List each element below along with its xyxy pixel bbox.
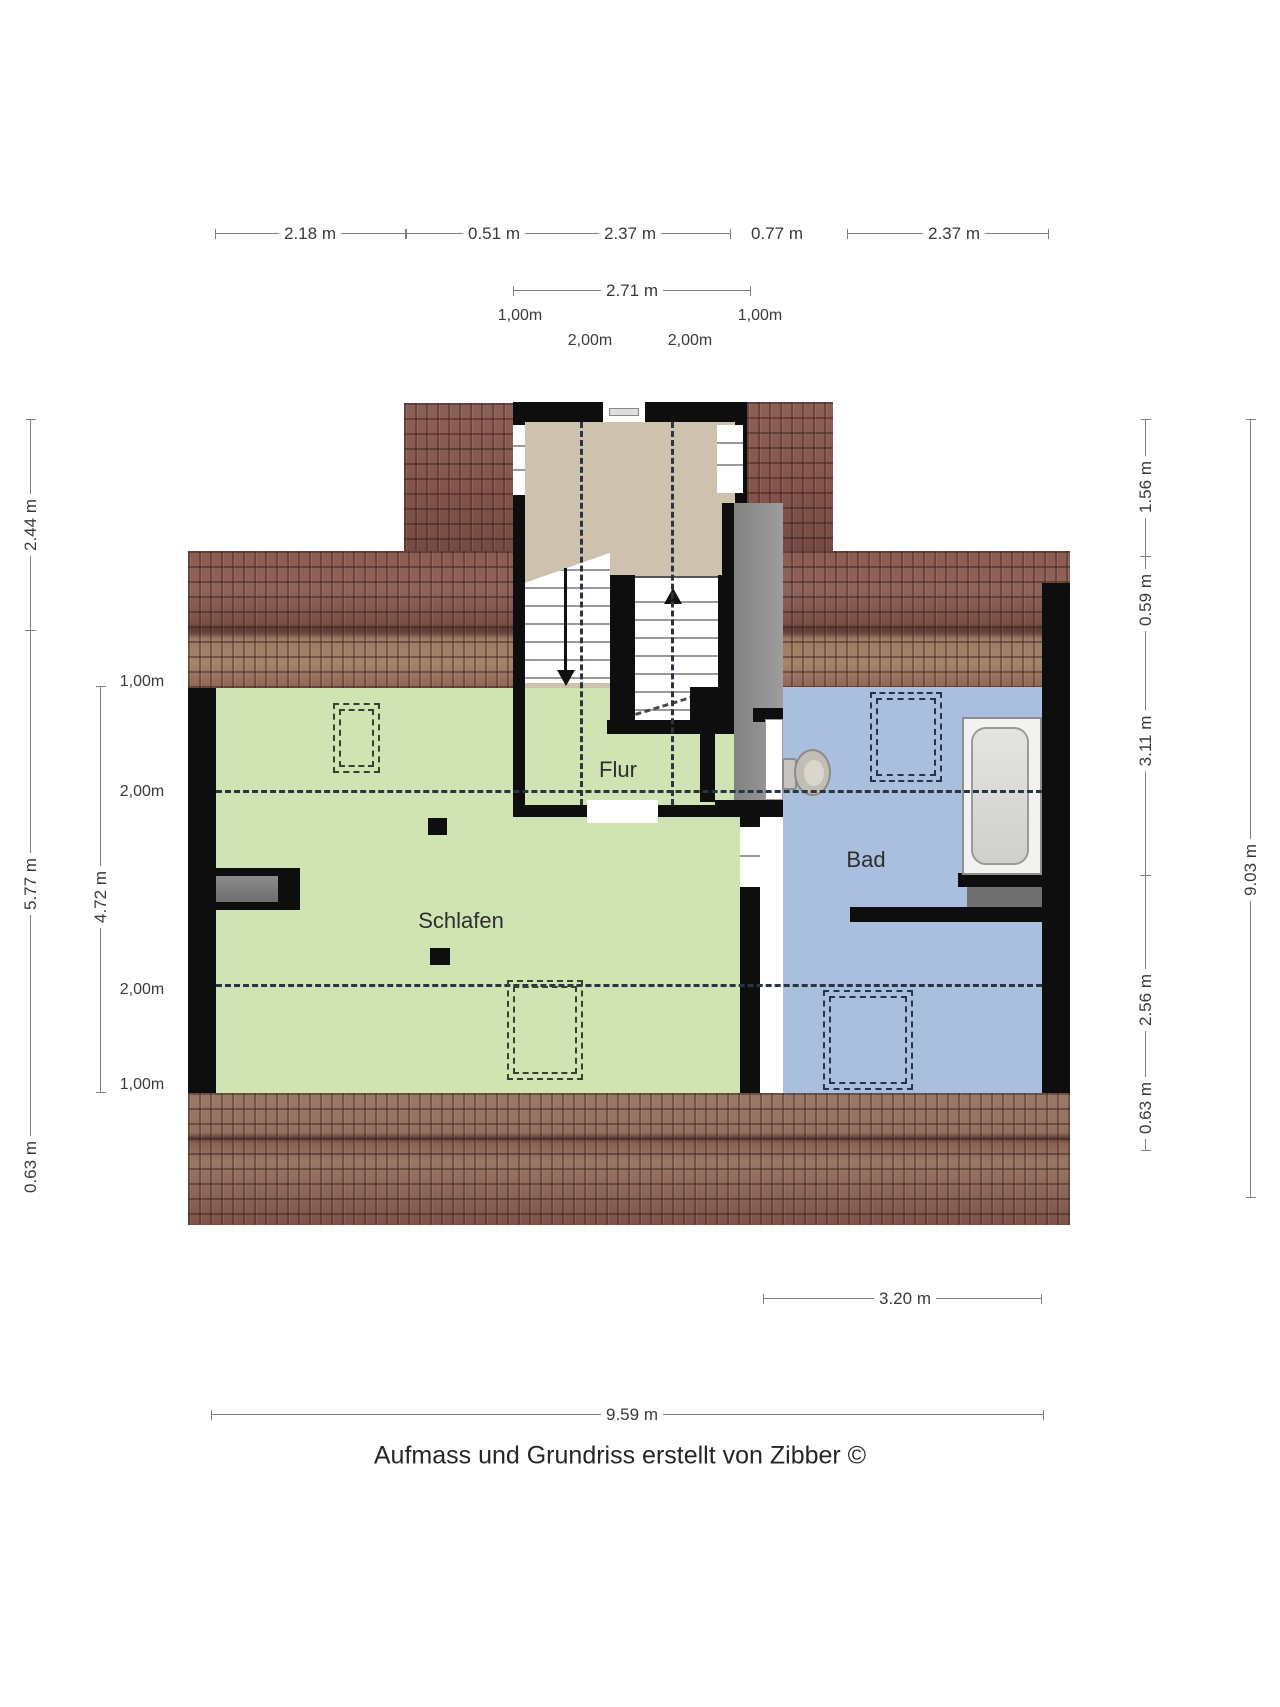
wall-bad-stub (850, 907, 1042, 922)
headroom-mark: 1,00m (120, 1076, 164, 1094)
door-schlafen-bad (740, 827, 760, 887)
dim-label: 3.11 m (1136, 711, 1156, 772)
headroom-line-2m-vertical (671, 422, 674, 805)
dim-line-right-outer (1250, 420, 1251, 1197)
window-dormer-top (603, 402, 645, 422)
headroom-mark: 2,00m (568, 332, 612, 350)
dim-label: 5.77 m (21, 853, 41, 915)
dim-label: 0.77 m (746, 224, 808, 244)
headroom-mark: 1,00m (120, 673, 164, 691)
roof-dormer-left (404, 403, 517, 552)
headroom-mark: 2,00m (120, 783, 164, 801)
dim-label: 2.71 m (601, 281, 663, 301)
dim-label: 1.56 m (1136, 456, 1156, 518)
dim-label: 0.63 m (21, 1136, 41, 1198)
room-label-schlafen: Schlafen (418, 908, 504, 934)
dim-label: 3.20 m (874, 1289, 936, 1309)
headroom-line-2m-vertical (580, 422, 583, 805)
window-frame (609, 408, 639, 416)
window-tick (513, 469, 525, 471)
post (430, 948, 450, 965)
roof-window-dashed (823, 990, 913, 1090)
headroom-mark: 2,00m (668, 332, 712, 350)
headroom-line-2m (216, 984, 1042, 987)
room-label-flur: Flur (599, 757, 637, 783)
door-flur-schlafen (587, 800, 658, 823)
headroom-mark: 2,00m (120, 981, 164, 999)
dim-label: 0.63 m (1136, 1077, 1156, 1139)
headroom-mark: 1,00m (738, 307, 782, 325)
dim-label: 2.37 m (599, 224, 661, 244)
caption: Aufmass und Grundriss erstellt von Zibbe… (374, 1442, 866, 1471)
roof-band-right (780, 551, 1070, 688)
window-dormer-left (513, 425, 525, 495)
bathtub-basin (971, 727, 1029, 865)
wall-stair-divider (610, 575, 635, 732)
wall-under-tub (958, 873, 1042, 887)
dim-label: 4.72 m (91, 866, 111, 928)
toilet-bowl-inner (804, 760, 824, 786)
tub-platform (967, 887, 1042, 907)
door-bad-leaf (765, 719, 783, 800)
roof-window-dashed (333, 703, 380, 773)
dim-tick (1140, 556, 1151, 557)
stairs-down-arrowhead-icon (557, 670, 575, 686)
dim-label: 2.56 m (1136, 969, 1156, 1031)
dim-tick (25, 630, 36, 631)
dim-label: 0.51 m (463, 224, 525, 244)
wall-bad-corner (690, 687, 722, 725)
dim-line-right-inner (1145, 420, 1146, 1150)
wall-right (1042, 583, 1070, 1093)
roof-band-left (188, 551, 513, 688)
toilet-bowl (794, 749, 831, 796)
room-label-bad: Bad (846, 847, 885, 873)
floorplan-page: 2.18 m 0.51 m 2.37 m 0.77 m 2.37 m 2.71 … (0, 0, 1280, 1707)
window-tick (717, 442, 743, 444)
window-tick (717, 464, 743, 466)
stairs-down-arrow-icon (564, 568, 567, 672)
dim-label: 2.18 m (279, 224, 341, 244)
dim-line-top-2 (406, 233, 730, 234)
chimney-inset (216, 876, 278, 902)
dim-label: 9.59 m (601, 1405, 663, 1425)
window-dormer-right (717, 425, 743, 493)
post (428, 818, 447, 835)
stairs-up-landing (635, 576, 722, 585)
dim-label: 0.59 m (1136, 569, 1156, 631)
dim-tick (1140, 875, 1151, 876)
roof-window-dashed (870, 692, 942, 782)
dim-label: 9.03 m (1241, 839, 1261, 901)
dim-label: 2.37 m (923, 224, 985, 244)
roof-band-bottom (188, 1093, 1070, 1225)
roof-window-dashed (507, 980, 583, 1080)
window-tick (513, 445, 525, 447)
door-tick (740, 855, 760, 857)
dim-label: 2.44 m (21, 494, 41, 556)
headroom-mark: 1,00m (498, 307, 542, 325)
headroom-line-2m (216, 790, 1042, 793)
bathtub (962, 717, 1042, 875)
floorplan: Flur Schlafen Bad (188, 402, 1070, 1225)
